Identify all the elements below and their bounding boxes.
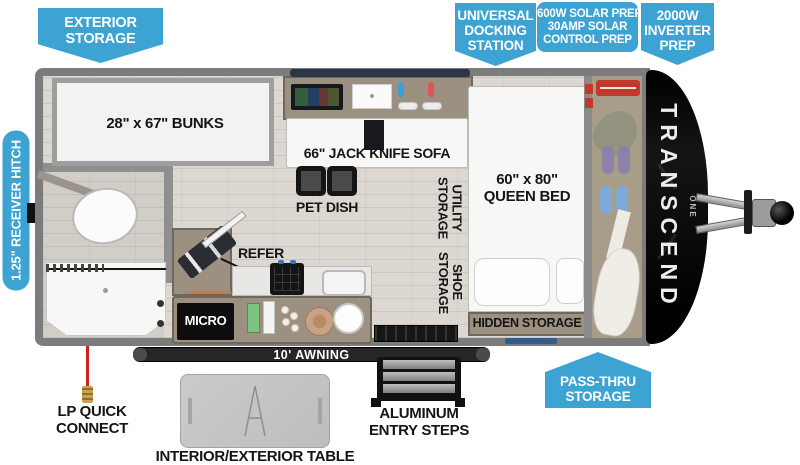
callout-docking-line2: DOCKING bbox=[455, 23, 536, 38]
callout-inverter-line3: PREP bbox=[641, 38, 714, 53]
rod-holder bbox=[585, 98, 593, 108]
callout-inverter-prep: 2000W INVERTER PREP bbox=[641, 3, 714, 65]
shower-drain bbox=[103, 288, 108, 293]
kitchen-sink bbox=[322, 270, 366, 296]
sandal bbox=[600, 186, 612, 214]
callout-solar-prep: 600W SOLAR PREP 30AMP SOLAR CONTROL PREP bbox=[537, 2, 638, 52]
shower-control-knob bbox=[157, 320, 164, 327]
callout-exterior-storage: EXTERIOR STORAGE bbox=[38, 8, 163, 63]
bed-pillow bbox=[556, 258, 584, 304]
shower-curtain-rings bbox=[46, 264, 104, 272]
callout-solar-line2: 30AMP SOLAR bbox=[537, 21, 638, 34]
hidden-storage-label: HIDDEN STORAGE bbox=[468, 317, 586, 331]
callout-exterior-storage-line2: STORAGE bbox=[38, 31, 163, 47]
callout-docking-line3: STATION bbox=[455, 38, 536, 53]
callout-universal-docking-station: UNIVERSAL DOCKING STATION bbox=[455, 3, 536, 66]
callout-passthru-line1: PASS-THRU bbox=[545, 374, 651, 389]
bunks-label: 28" x 67" BUNKS bbox=[80, 116, 250, 133]
stove-burner-blue bbox=[290, 260, 296, 264]
microwave-handle bbox=[185, 291, 231, 294]
queen-bed-line2: QUEEN BED bbox=[468, 189, 586, 206]
shoe-storage-line2: STORAGE bbox=[435, 252, 449, 312]
plate-tan bbox=[305, 307, 334, 336]
window-strip-top bbox=[290, 69, 470, 77]
callout-docking-line1: UNIVERSAL bbox=[455, 8, 536, 23]
queen-bed-label: 60" x 80" QUEEN BED bbox=[468, 172, 586, 205]
sneaker bbox=[602, 146, 614, 174]
callout-exterior-storage-line1: EXTERIOR bbox=[38, 15, 163, 31]
table-label: INTERIOR/EXTERIOR TABLE bbox=[130, 449, 380, 465]
cutting-board-green bbox=[247, 303, 260, 333]
sneaker bbox=[618, 146, 630, 174]
steps-label-line2: ENTRY STEPS bbox=[360, 423, 478, 440]
callout-receiver-hitch-label: 1.25" RECEIVER HITCH bbox=[9, 140, 24, 281]
passthru-divider-wall bbox=[584, 76, 592, 338]
callout-pass-thru-storage: PASS-THRU STORAGE bbox=[545, 352, 651, 408]
step-tread bbox=[383, 360, 455, 369]
queen-bed-line1: 60" x 80" bbox=[468, 172, 586, 189]
rv-floorplan-diagram: EXTERIOR STORAGE UNIVERSAL DOCKING STATI… bbox=[0, 0, 800, 465]
utility-storage-line1: UTILITY bbox=[449, 175, 463, 242]
entry-door-mat bbox=[374, 325, 458, 342]
egg bbox=[282, 318, 290, 326]
step-tread bbox=[383, 384, 455, 393]
table-hinge bbox=[188, 398, 192, 424]
table-fold-legs-icon bbox=[237, 382, 273, 440]
micro-label: MICRO bbox=[177, 314, 234, 328]
egg bbox=[291, 324, 299, 332]
controller bbox=[422, 102, 442, 110]
utility-storage-line2: STORAGE bbox=[435, 175, 449, 242]
shoe-storage-line1: SHOE bbox=[450, 252, 464, 312]
brand-model-text: TRANSCEND bbox=[652, 82, 686, 332]
lp-connector bbox=[82, 386, 93, 403]
egg bbox=[290, 312, 298, 320]
pet-dish-bowl bbox=[327, 166, 357, 196]
tongue-jack bbox=[744, 190, 752, 234]
joycon-blue bbox=[398, 82, 404, 97]
lp-line bbox=[86, 346, 89, 388]
callout-receiver-hitch: 1.25" RECEIVER HITCH bbox=[3, 131, 30, 291]
window-strip-bottom bbox=[505, 338, 557, 344]
utility-storage-label: UTILITY STORAGE bbox=[436, 175, 464, 242]
callout-solar-line3: CONTROL PREP bbox=[537, 34, 638, 47]
tv-screen-pixels bbox=[295, 88, 339, 106]
hitch-ball bbox=[770, 201, 794, 225]
stove-grate bbox=[274, 267, 300, 291]
rod-holder bbox=[585, 84, 593, 94]
pet-dish-bowl bbox=[296, 166, 326, 196]
plate-white bbox=[333, 303, 364, 334]
lp-label-line1: LP QUICK bbox=[32, 404, 152, 421]
table-hinge bbox=[318, 398, 322, 424]
lp-quick-connect-label: LP QUICK CONNECT bbox=[32, 404, 152, 437]
lp-label-line2: CONNECT bbox=[32, 421, 152, 438]
callout-inverter-line2: INVERTER bbox=[641, 23, 714, 38]
callout-solar-line1: 600W SOLAR PREP bbox=[537, 8, 638, 21]
callout-passthru-line2: STORAGE bbox=[545, 389, 651, 404]
shower-pan bbox=[46, 262, 166, 336]
cutting-board-white bbox=[263, 301, 275, 334]
tablet-button bbox=[370, 94, 374, 98]
shower-control-knob bbox=[157, 300, 164, 307]
sofa-label: 66" JACK KNIFE SOFA bbox=[292, 146, 462, 161]
step-tread bbox=[383, 372, 455, 381]
refer-label: REFER bbox=[238, 246, 294, 261]
fishing-rod-case-stripe bbox=[600, 87, 636, 89]
steps-label-line1: ALUMINUM bbox=[360, 406, 478, 423]
joycon-red bbox=[428, 82, 434, 97]
controller bbox=[398, 102, 418, 110]
bed-pillow bbox=[474, 258, 550, 306]
stove-burner-blue bbox=[278, 260, 284, 264]
entry-steps-label: ALUMINUM ENTRY STEPS bbox=[360, 406, 478, 439]
shoe-storage-label: SHOE STORAGE bbox=[436, 252, 464, 312]
pet-dish-label: PET DISH bbox=[292, 200, 362, 215]
egg bbox=[281, 306, 289, 314]
entry-steps bbox=[377, 357, 461, 401]
callout-inverter-line1: 2000W bbox=[641, 8, 714, 23]
